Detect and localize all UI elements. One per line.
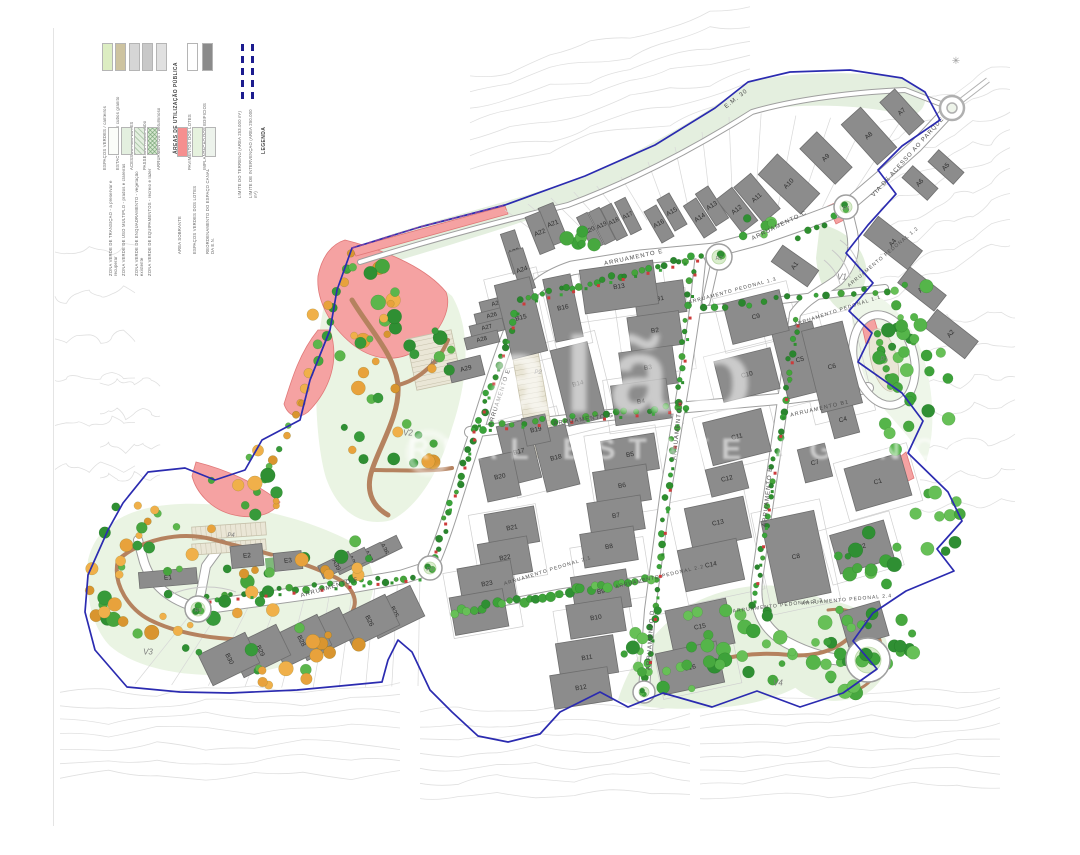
building-label: B3 bbox=[644, 364, 653, 372]
building-label: B6 bbox=[618, 482, 627, 490]
access-mark bbox=[505, 427, 508, 430]
access-mark bbox=[782, 417, 785, 420]
tree bbox=[354, 431, 365, 442]
tree bbox=[761, 299, 767, 305]
legend-item-label: ARRUAMENTOS / betuminoso bbox=[157, 78, 168, 170]
tree bbox=[640, 688, 645, 693]
legend-item-label: ZONA VERDE DE EQUIPAMENTOS - recreio e l… bbox=[148, 161, 159, 276]
tree bbox=[719, 604, 732, 617]
tree bbox=[903, 421, 914, 432]
tree bbox=[824, 638, 832, 646]
tree bbox=[739, 232, 747, 240]
tree bbox=[258, 667, 266, 675]
tree bbox=[608, 272, 615, 279]
tree bbox=[232, 479, 244, 491]
tree bbox=[470, 607, 478, 615]
tree bbox=[783, 385, 789, 391]
tree bbox=[454, 490, 459, 495]
access-mark bbox=[774, 472, 777, 475]
tree bbox=[447, 346, 455, 354]
contour-line bbox=[55, 373, 135, 382]
contour-line bbox=[470, 41, 750, 108]
legend-swatch bbox=[115, 43, 126, 71]
tree bbox=[893, 543, 902, 552]
tree bbox=[441, 516, 446, 521]
tree bbox=[365, 555, 372, 562]
access-mark bbox=[788, 380, 791, 383]
building: C1 bbox=[844, 453, 912, 511]
tree bbox=[245, 643, 258, 656]
tree bbox=[651, 406, 658, 413]
building: A2 bbox=[924, 309, 979, 358]
building: A8 bbox=[841, 107, 896, 165]
tree bbox=[446, 500, 452, 506]
tree bbox=[907, 646, 920, 659]
legend-swatch bbox=[147, 127, 158, 155]
tree bbox=[588, 238, 601, 251]
tree bbox=[789, 351, 796, 358]
tree bbox=[349, 263, 357, 271]
contour-line bbox=[700, 739, 1000, 757]
tree bbox=[711, 304, 718, 311]
legend-item-label: ACESSOS AOS LOTES bbox=[130, 78, 141, 170]
tree bbox=[577, 226, 589, 238]
legend-swatch bbox=[156, 43, 167, 71]
tree bbox=[658, 541, 665, 548]
building-label: E2 bbox=[243, 552, 252, 560]
tree bbox=[310, 649, 324, 663]
tree bbox=[324, 569, 334, 579]
access-mark bbox=[237, 598, 240, 601]
tree bbox=[881, 579, 892, 590]
building-label: B8 bbox=[605, 543, 614, 551]
tree bbox=[684, 292, 690, 298]
tree bbox=[341, 424, 348, 431]
access-mark bbox=[517, 313, 520, 316]
tree bbox=[266, 603, 279, 616]
tree bbox=[887, 557, 902, 572]
contour-line bbox=[60, 709, 400, 725]
tree bbox=[509, 422, 514, 427]
legend-swatch bbox=[121, 127, 132, 155]
access-mark bbox=[585, 287, 588, 290]
tree bbox=[384, 331, 391, 338]
tree bbox=[645, 265, 652, 272]
tree bbox=[223, 565, 231, 573]
access-mark bbox=[497, 369, 500, 372]
tree bbox=[758, 573, 763, 578]
tree bbox=[676, 259, 681, 264]
legend-item-label: ZONA VERDE DE TRANSIÇÃO - a preservar e … bbox=[109, 161, 120, 276]
legend-item-label: ESTACIONAMENTO / cubos granito bbox=[116, 78, 127, 170]
tree bbox=[248, 476, 263, 491]
tree bbox=[334, 550, 348, 564]
tree bbox=[575, 283, 582, 290]
tree bbox=[603, 583, 613, 593]
tree bbox=[910, 334, 920, 344]
tree bbox=[797, 295, 803, 301]
access-mark bbox=[419, 579, 422, 582]
tree bbox=[834, 552, 842, 560]
legend-title: LEGENDA bbox=[261, 44, 273, 154]
access-mark bbox=[669, 489, 672, 492]
tree bbox=[920, 279, 934, 293]
access-mark bbox=[483, 411, 486, 414]
contour-line bbox=[920, 468, 1015, 482]
access-mark bbox=[444, 523, 447, 526]
tree bbox=[814, 225, 819, 230]
tree bbox=[818, 615, 832, 629]
tree bbox=[349, 536, 361, 548]
contour-line bbox=[470, 7, 750, 77]
tree bbox=[613, 409, 620, 416]
tree bbox=[679, 365, 685, 371]
access-mark bbox=[363, 584, 366, 587]
access-mark bbox=[279, 593, 282, 596]
tree bbox=[563, 284, 570, 291]
access-mark bbox=[473, 431, 476, 434]
access-mark bbox=[785, 398, 788, 401]
tree bbox=[387, 300, 394, 307]
tree bbox=[699, 253, 704, 258]
tree bbox=[133, 541, 143, 551]
tree bbox=[894, 640, 906, 652]
tree bbox=[352, 563, 363, 574]
tree bbox=[900, 363, 913, 376]
tree bbox=[655, 264, 660, 269]
access-mark bbox=[454, 495, 457, 498]
tree bbox=[682, 660, 692, 670]
contour-line bbox=[920, 499, 1015, 512]
tree bbox=[942, 412, 955, 425]
north-arrow-icon: ✳ bbox=[952, 56, 960, 67]
tree bbox=[348, 446, 356, 454]
tree bbox=[207, 525, 215, 533]
tree bbox=[936, 348, 946, 358]
tree bbox=[502, 344, 509, 351]
tree bbox=[881, 323, 895, 337]
access-mark bbox=[756, 582, 759, 585]
tree bbox=[921, 350, 932, 361]
tree bbox=[822, 223, 828, 229]
area-label: P3 bbox=[430, 360, 438, 366]
tree bbox=[499, 420, 506, 427]
access-mark bbox=[647, 272, 650, 275]
tree bbox=[301, 673, 313, 685]
tree bbox=[313, 340, 322, 349]
contour-line bbox=[60, 694, 400, 708]
access-mark bbox=[696, 260, 699, 263]
access-mark bbox=[664, 532, 667, 535]
access-mark bbox=[538, 424, 541, 427]
building: C11 bbox=[703, 408, 772, 465]
tree bbox=[703, 656, 715, 668]
building: C14 bbox=[677, 538, 744, 592]
access-mark bbox=[652, 413, 655, 416]
tree bbox=[228, 592, 233, 597]
access-mark bbox=[377, 583, 380, 586]
access-mark bbox=[686, 338, 689, 341]
contour-line bbox=[470, 27, 750, 92]
access-mark bbox=[521, 426, 524, 429]
access-mark bbox=[689, 317, 692, 320]
tree bbox=[352, 638, 366, 652]
tree bbox=[144, 625, 159, 640]
tree bbox=[884, 289, 891, 296]
access-mark bbox=[572, 290, 575, 293]
tree bbox=[509, 319, 516, 326]
tree bbox=[249, 509, 261, 521]
contour-line bbox=[700, 754, 1000, 772]
tree bbox=[773, 630, 787, 644]
tree bbox=[687, 253, 694, 260]
tree bbox=[686, 277, 693, 284]
tree bbox=[196, 649, 202, 655]
tree bbox=[186, 548, 199, 561]
area-label: V4 bbox=[773, 679, 783, 688]
tree bbox=[277, 586, 282, 591]
tree bbox=[556, 590, 564, 598]
tree bbox=[753, 591, 758, 596]
tree bbox=[662, 667, 670, 675]
tree bbox=[762, 533, 767, 538]
tree bbox=[683, 611, 693, 621]
tree bbox=[821, 659, 832, 670]
tree bbox=[358, 367, 369, 378]
building: E2 bbox=[230, 543, 264, 568]
legend-item-label: PASSEIOS / micro-cubo bbox=[143, 78, 154, 170]
tree bbox=[241, 501, 249, 509]
tree bbox=[255, 596, 265, 606]
tree bbox=[531, 293, 538, 300]
legend-item-label: LIMITE DE INTERVENÇÃO (ÁREA 250.000 m²) bbox=[249, 106, 260, 198]
access-mark bbox=[609, 281, 612, 284]
tree bbox=[661, 262, 668, 269]
tree bbox=[182, 644, 189, 651]
area-label: V1 bbox=[837, 273, 847, 282]
tree bbox=[513, 595, 521, 603]
access-mark bbox=[489, 429, 492, 432]
tree bbox=[668, 473, 673, 478]
tree bbox=[845, 553, 851, 559]
tree bbox=[847, 623, 856, 632]
tree bbox=[355, 337, 367, 349]
tree bbox=[173, 523, 180, 530]
contour-line bbox=[420, 773, 690, 785]
tree bbox=[891, 300, 901, 310]
tree bbox=[639, 267, 645, 273]
contour-line bbox=[920, 434, 1015, 449]
access-mark bbox=[478, 425, 481, 428]
tree bbox=[410, 575, 415, 580]
tree bbox=[621, 651, 628, 658]
access-mark bbox=[776, 453, 779, 456]
tree bbox=[924, 366, 934, 376]
tree bbox=[430, 440, 438, 448]
tree bbox=[578, 240, 586, 248]
contour-line bbox=[420, 790, 690, 800]
tree bbox=[173, 626, 183, 636]
tree bbox=[743, 666, 755, 678]
tree bbox=[232, 608, 242, 618]
tree bbox=[115, 571, 123, 579]
legend-swatch bbox=[177, 127, 188, 157]
contour-line bbox=[420, 727, 690, 740]
tree bbox=[444, 529, 449, 534]
tree bbox=[286, 584, 293, 591]
tree bbox=[762, 611, 773, 622]
access-mark bbox=[560, 293, 563, 296]
access-mark bbox=[754, 601, 757, 604]
contour-line bbox=[880, 168, 1010, 232]
access-mark bbox=[507, 341, 510, 344]
tree bbox=[466, 456, 472, 462]
tree bbox=[896, 614, 908, 626]
tree bbox=[262, 586, 274, 598]
tree bbox=[795, 330, 800, 335]
tree bbox=[700, 304, 707, 311]
tree bbox=[675, 384, 680, 389]
tree bbox=[271, 487, 283, 499]
legend-item-label: ESPAÇOS VERDES DOS LOTES bbox=[193, 162, 204, 254]
building-label: B7 bbox=[612, 512, 621, 520]
tree bbox=[294, 623, 304, 633]
tree bbox=[372, 358, 379, 365]
tree bbox=[373, 393, 383, 403]
tree bbox=[444, 365, 455, 376]
tree bbox=[852, 563, 862, 573]
legend-item-label: ÁREA SOBRANTE bbox=[178, 162, 189, 254]
tree bbox=[679, 353, 686, 360]
tree bbox=[666, 482, 673, 489]
tree bbox=[660, 518, 665, 523]
tree bbox=[679, 339, 685, 345]
area-label: P2 bbox=[534, 370, 542, 376]
tree bbox=[688, 685, 695, 692]
contour-line bbox=[100, 408, 160, 420]
tree bbox=[496, 362, 503, 369]
tree bbox=[898, 346, 909, 357]
tree bbox=[814, 293, 819, 298]
building: C12 bbox=[705, 461, 749, 497]
tree bbox=[251, 566, 258, 573]
tree bbox=[895, 320, 908, 333]
legend-swatch bbox=[108, 127, 119, 155]
contour-line bbox=[420, 743, 690, 757]
tree bbox=[312, 582, 317, 587]
access-mark bbox=[656, 596, 659, 599]
tree bbox=[784, 293, 790, 299]
contour-line bbox=[100, 442, 160, 454]
tree bbox=[633, 409, 639, 415]
tree bbox=[150, 506, 159, 515]
access-mark bbox=[468, 453, 471, 456]
tree bbox=[686, 642, 697, 653]
tree bbox=[115, 556, 125, 566]
legend-item-label: ESPAÇOS VERDES / canteiros bbox=[103, 78, 114, 170]
legend-swatch bbox=[134, 127, 145, 155]
tree bbox=[620, 408, 626, 414]
tree bbox=[120, 539, 133, 552]
tree bbox=[746, 624, 760, 638]
contour-line bbox=[920, 374, 1015, 388]
tree bbox=[692, 607, 703, 618]
tree bbox=[663, 403, 669, 409]
tree bbox=[943, 373, 953, 383]
contour-line bbox=[55, 330, 135, 343]
access-mark bbox=[435, 551, 438, 554]
tree bbox=[921, 542, 934, 555]
access-mark bbox=[684, 263, 687, 266]
tree bbox=[292, 411, 299, 418]
contour-line bbox=[420, 756, 690, 772]
access-mark bbox=[619, 416, 622, 419]
tree bbox=[160, 613, 167, 620]
tree bbox=[599, 277, 605, 283]
tree bbox=[622, 274, 627, 279]
tree bbox=[367, 336, 374, 343]
contour-line bbox=[100, 378, 160, 386]
access-mark bbox=[681, 381, 684, 384]
legend-item-label: LIMITE DO TERRENO (ÁREA 253.000 m²) bbox=[238, 106, 249, 198]
tree bbox=[902, 282, 908, 288]
tree bbox=[755, 565, 760, 570]
tree bbox=[176, 566, 182, 572]
access-mark bbox=[439, 537, 442, 540]
tree bbox=[335, 350, 346, 361]
tree bbox=[359, 454, 369, 464]
access-mark bbox=[535, 299, 538, 302]
access-mark bbox=[512, 327, 515, 330]
access-mark bbox=[223, 599, 226, 602]
tree bbox=[884, 427, 896, 439]
legend-swatch bbox=[205, 127, 216, 157]
tree bbox=[836, 606, 844, 614]
tree bbox=[851, 291, 856, 296]
tree bbox=[324, 301, 333, 310]
tree bbox=[134, 502, 142, 510]
tree bbox=[914, 318, 927, 331]
contour-line bbox=[60, 754, 400, 764]
tree bbox=[795, 236, 801, 242]
tree bbox=[239, 569, 249, 579]
tree bbox=[409, 459, 418, 468]
tree bbox=[432, 328, 439, 335]
access-mark bbox=[265, 595, 268, 598]
tree bbox=[295, 553, 309, 567]
tree bbox=[788, 648, 796, 656]
tree bbox=[507, 598, 513, 604]
tree bbox=[657, 681, 670, 694]
tree bbox=[682, 329, 687, 334]
tree bbox=[462, 607, 470, 615]
tree bbox=[637, 633, 648, 644]
contour-line bbox=[55, 286, 135, 303]
building: B2 bbox=[627, 311, 683, 352]
tree bbox=[775, 448, 781, 454]
tree bbox=[108, 598, 122, 612]
area-label: P4 bbox=[227, 533, 235, 539]
access-mark bbox=[668, 411, 671, 414]
tree bbox=[351, 381, 365, 395]
site-plan-page: { "page": {"background": "#ffffff"}, "le… bbox=[0, 0, 1080, 855]
legend-swatch bbox=[129, 43, 140, 71]
contour-line bbox=[700, 782, 1000, 798]
tree bbox=[394, 577, 399, 582]
legend: ESPAÇOS VERDES / canteiros ESTACIONAMENT… bbox=[0, 0, 300, 260]
tree bbox=[865, 564, 878, 577]
building: B12 bbox=[550, 667, 613, 710]
